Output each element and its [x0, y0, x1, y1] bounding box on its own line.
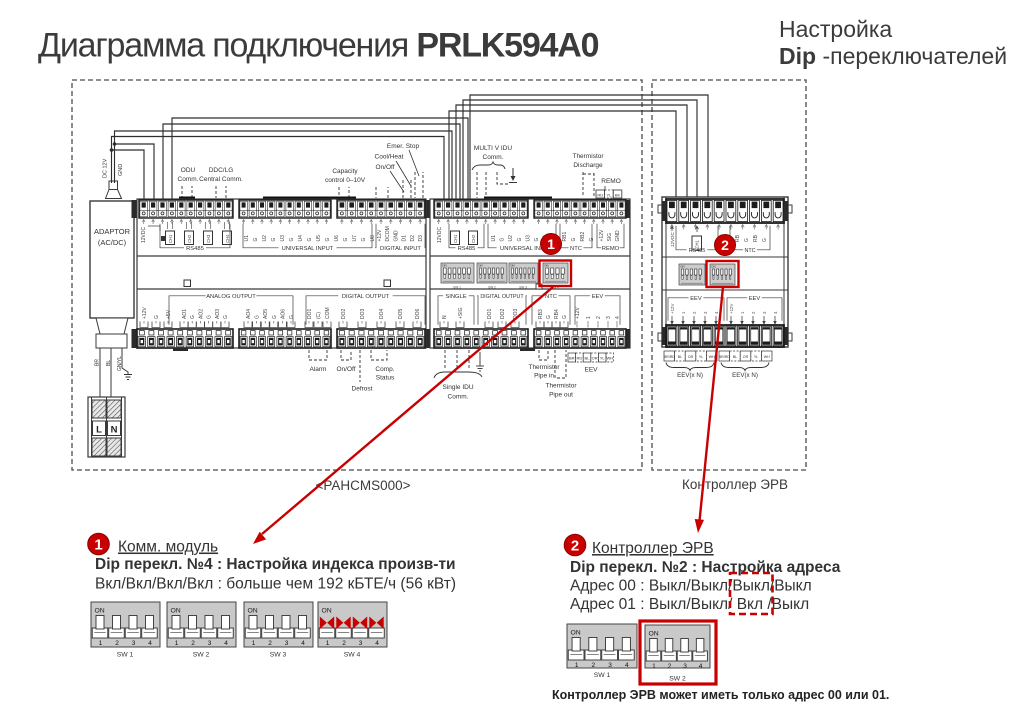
svg-text:G: G [223, 315, 229, 319]
svg-text:UNIVERSAL INPUT: UNIVERSAL INPUT [282, 246, 334, 252]
svg-text:YL: YL [600, 356, 606, 361]
svg-text:Thermistor: Thermistor [545, 383, 577, 390]
svg-text:Status: Status [376, 375, 395, 382]
svg-text:AO5: AO5 [263, 309, 269, 319]
svg-text:G: G [517, 238, 523, 242]
svg-text:RS485: RS485 [186, 246, 204, 252]
svg-text:G: G [546, 315, 552, 319]
svg-text:Dip перекл. №4 : Настройка инд: Dip перекл. №4 : Настройка индекса произ… [95, 556, 456, 573]
svg-text:RD: RD [597, 192, 603, 197]
svg-text:Вкл/Вкл/Вкл/Вкл : больше чем 1: Вкл/Вкл/Вкл/Вкл : больше чем 192 кБТЕ/ч … [95, 576, 456, 593]
svg-text:BR: BR [569, 356, 575, 361]
svg-text:ON: ON [649, 631, 659, 638]
svg-text:BK: BK [615, 192, 621, 197]
svg-text:U5: U5 [316, 235, 322, 242]
svg-text:SW 2: SW 2 [488, 286, 496, 290]
svg-text:4: 4 [301, 640, 305, 647]
svg-text:DC 12V: DC 12V [103, 158, 109, 178]
svg-text:4: 4 [375, 640, 379, 647]
svg-text:Комм. модуль: Комм. модуль [118, 539, 218, 556]
svg-text:SIG: SIG [607, 233, 613, 242]
svg-text:Dip -переключателей: Dip -переключателей [779, 43, 1007, 69]
svg-text:+12V: +12V [670, 304, 675, 314]
svg-text:Emer. Stop: Emer. Stop [387, 143, 420, 150]
svg-text:2: 2 [668, 663, 672, 670]
svg-text:EEV: EEV [749, 296, 761, 302]
svg-text:BR/RD: BR/RD [664, 355, 676, 359]
svg-text:N: N [111, 425, 118, 436]
svg-text:G: G [289, 315, 295, 319]
svg-text:GND: GND [393, 230, 399, 242]
svg-text:DDC/LG: DDC/LG [209, 167, 234, 174]
svg-text:AO6: AO6 [280, 309, 286, 319]
svg-text:Dip перекл. №2 : Настройка адр: Dip перекл. №2 : Настройка адреса [570, 559, 841, 576]
svg-text:Central Comm.: Central Comm. [199, 176, 243, 183]
svg-text:D1: D1 [402, 235, 408, 242]
svg-text:DO6: DO6 [415, 309, 421, 320]
svg-text:L: L [96, 425, 102, 436]
svg-text:ON: ON [95, 608, 105, 615]
svg-text:+12V: +12V [377, 229, 383, 241]
svg-text:GND: GND [118, 164, 124, 176]
svg-text:Single IDU: Single IDU [442, 384, 473, 391]
svg-text:D2: D2 [410, 235, 416, 242]
svg-text:G: G [289, 238, 295, 242]
svg-text:BL: BL [585, 356, 591, 361]
svg-text:G: G [154, 315, 160, 319]
svg-text:DO3: DO3 [360, 309, 366, 320]
svg-text:AO1: AO1 [182, 309, 188, 319]
svg-text:G: G [562, 315, 568, 319]
svg-text:U6: U6 [334, 235, 340, 242]
svg-text:CH2: CH2 [471, 234, 476, 243]
svg-text:4: 4 [148, 640, 152, 647]
svg-text:G: G [271, 238, 277, 242]
svg-text:3: 3 [359, 640, 363, 647]
svg-text:SW 1: SW 1 [117, 652, 134, 659]
svg-text:1: 1 [547, 236, 555, 252]
svg-text:RB: RB [753, 234, 759, 242]
svg-text:U3: U3 [525, 235, 531, 242]
svg-text:Thermistor: Thermistor [572, 153, 604, 160]
svg-text:G: G [255, 315, 261, 319]
svg-text:ON: ON [571, 630, 581, 637]
svg-text:Comm.: Comm. [483, 154, 504, 161]
svg-text:1: 1 [652, 663, 656, 670]
svg-text:G: G [571, 238, 577, 242]
svg-text:EEV: EEV [584, 367, 598, 374]
svg-text:U8: U8 [370, 235, 376, 242]
svg-text:DO5: DO5 [398, 309, 404, 320]
svg-text:DO2: DO2 [341, 309, 347, 320]
svg-text:YL: YL [606, 192, 612, 197]
svg-text:ANALOG OUTPUT: ANALOG OUTPUT [206, 294, 256, 300]
svg-text:AO3: AO3 [215, 309, 221, 319]
svg-text:Pipe out: Pipe out [549, 392, 573, 399]
svg-text:DIGITAL OUTPUT: DIGITAL OUTPUT [480, 294, 524, 300]
svg-text:G: G [272, 315, 278, 319]
svg-text:1: 1 [586, 316, 592, 319]
svg-text:AO4: AO4 [246, 309, 252, 319]
svg-text:CH3: CH3 [206, 234, 211, 243]
svg-text:EEV(x N): EEV(x N) [677, 372, 703, 379]
svg-text:+5V: +5V [166, 309, 172, 319]
svg-text:WH: WH [606, 356, 613, 361]
svg-text:CH1: CH1 [695, 239, 700, 248]
svg-text:DO1: DO1 [487, 309, 493, 320]
svg-text:ON: ON [711, 265, 716, 269]
svg-text:G: G [190, 315, 196, 319]
svg-text:Контроллер ЭРВ: Контроллер ЭРВ [682, 477, 788, 492]
svg-text:G: G [325, 238, 331, 242]
svg-text:Comp.: Comp. [375, 366, 394, 373]
svg-text:G: G [361, 238, 367, 242]
svg-text:SW 4: SW 4 [344, 652, 361, 659]
svg-text:D3: D3 [418, 235, 424, 242]
svg-text:3: 3 [208, 640, 212, 647]
svg-text:RS485: RS485 [689, 248, 705, 254]
svg-text:SW 1: SW 1 [594, 672, 611, 679]
svg-text:ODU: ODU [181, 167, 196, 174]
svg-text:2: 2 [191, 640, 195, 647]
svg-text:RS485: RS485 [458, 246, 476, 252]
svg-text:1: 1 [94, 537, 102, 554]
svg-text:REMO: REMO [601, 178, 621, 185]
svg-text:MULTI V IDU: MULTI V IDU [474, 145, 512, 152]
svg-text:DCOM: DCOM [385, 226, 391, 241]
svg-text:2: 2 [342, 640, 346, 647]
svg-text:DO4: DO4 [379, 309, 385, 320]
svg-text:control 0–10V: control 0–10V [325, 177, 366, 184]
svg-text:COM: COM [325, 307, 331, 319]
svg-text:NTC: NTC [545, 294, 557, 300]
svg-text:Discharge: Discharge [573, 162, 603, 169]
svg-text:GND: GND [615, 230, 621, 242]
svg-text:SW 1: SW 1 [453, 286, 461, 290]
svg-text:12VDC: 12VDC [670, 232, 675, 247]
svg-text:Контроллер ЭРВ: Контроллер ЭРВ [592, 540, 714, 557]
svg-text:(C): (C) [316, 312, 322, 319]
svg-text:G: G [744, 238, 750, 242]
svg-text:G: G [343, 238, 349, 242]
svg-text:G: G [762, 238, 768, 242]
svg-text:DO1: DO1 [307, 309, 313, 320]
svg-text:DIGITAL INPUT: DIGITAL INPUT [380, 246, 421, 252]
svg-text:+12V: +12V [599, 229, 605, 241]
svg-text:NTC: NTC [744, 248, 755, 254]
svg-text:4: 4 [699, 663, 703, 670]
svg-text:BR: BR [95, 359, 101, 366]
svg-text:RB: RB [735, 234, 741, 242]
svg-text:BL: BL [678, 355, 682, 359]
svg-text:Defrost: Defrost [352, 386, 373, 393]
svg-text:2: 2 [721, 237, 729, 253]
svg-text:(AC/DC): (AC/DC) [98, 238, 127, 247]
svg-text:RD: RD [577, 356, 583, 361]
svg-text:+SIG: +SIG [458, 307, 464, 319]
svg-text:ON: ON [171, 608, 181, 615]
svg-text:2: 2 [592, 662, 596, 669]
svg-text:1: 1 [326, 640, 330, 647]
svg-text:OR: OR [688, 355, 694, 359]
svg-text:CH2: CH2 [187, 234, 192, 243]
svg-text:+12V: +12V [142, 307, 148, 319]
svg-text:EEV: EEV [592, 294, 604, 300]
svg-text:On/Off: On/Off [336, 366, 355, 373]
svg-text:ON: ON [544, 264, 549, 268]
svg-text:+12V: +12V [729, 304, 734, 314]
svg-text:Thermistor: Thermistor [528, 364, 560, 371]
svg-text:+12V: +12V [575, 307, 581, 319]
svg-text:1: 1 [575, 662, 579, 669]
svg-text:3: 3 [608, 662, 612, 669]
svg-text:Диаграмма подключения PRLK594A: Диаграмма подключения PRLK594A0 [38, 27, 599, 65]
svg-text:Pipe in: Pipe in [534, 373, 554, 380]
svg-text:GN/YL: GN/YL [117, 356, 123, 371]
svg-text:12VDC: 12VDC [141, 226, 147, 243]
svg-text:WH: WH [709, 355, 715, 359]
svg-text:On/Off: On/Off [375, 164, 394, 171]
svg-text:Cool/Heat: Cool/Heat [375, 154, 404, 161]
svg-text:REMO: REMO [602, 246, 620, 252]
svg-text:ON: ON [478, 264, 483, 268]
svg-text:Адрес 00 : Выкл/Выкл/Выкл/Выкл: Адрес 00 : Выкл/Выкл/Выкл/Выкл [570, 578, 812, 595]
svg-text:CH4: CH4 [225, 234, 230, 243]
svg-text:ADAPTOR: ADAPTOR [94, 227, 131, 236]
svg-text:YL: YL [754, 355, 758, 359]
svg-text:AO2: AO2 [198, 309, 204, 319]
svg-text:U1: U1 [491, 235, 497, 242]
svg-text:G: G [500, 238, 506, 242]
svg-text:U3: U3 [280, 235, 286, 242]
svg-text:Comm.: Comm. [448, 394, 469, 401]
svg-text:4: 4 [224, 640, 228, 647]
svg-text:DIGITAL OUTPUT: DIGITAL OUTPUT [342, 294, 390, 300]
svg-text:3: 3 [606, 316, 612, 319]
svg-text:2: 2 [115, 640, 119, 647]
svg-text:2: 2 [571, 538, 579, 555]
svg-text:U4: U4 [298, 235, 304, 242]
svg-text:3: 3 [132, 640, 136, 647]
svg-text:SW 3: SW 3 [519, 286, 527, 290]
svg-text:G: G [307, 238, 313, 242]
svg-text:U2: U2 [508, 235, 514, 242]
svg-text:NTC: NTC [570, 246, 582, 252]
svg-text:1: 1 [175, 640, 179, 647]
svg-text:SINGLE: SINGLE [445, 294, 466, 300]
svg-text:U2: U2 [262, 235, 268, 242]
svg-text:1: 1 [252, 640, 256, 647]
svg-text:4: 4 [625, 662, 629, 669]
svg-text:RB2: RB2 [580, 232, 586, 242]
svg-text:ON: ON [442, 264, 447, 268]
svg-text:2: 2 [596, 316, 602, 319]
svg-text:WH: WH [764, 355, 770, 359]
svg-text:ON: ON [248, 608, 258, 615]
svg-text:Настройка: Настройка [779, 16, 892, 42]
svg-text:CH1: CH1 [168, 234, 173, 243]
svg-text:EEV(x N): EEV(x N) [732, 372, 758, 379]
svg-text:OR: OR [743, 355, 749, 359]
svg-text:Alarm: Alarm [310, 366, 327, 373]
svg-text:OR: OR [592, 356, 598, 361]
svg-text:<PAHCMS000>: <PAHCMS000> [315, 478, 410, 493]
svg-text:ON: ON [510, 264, 515, 268]
svg-text:U7: U7 [352, 235, 358, 242]
svg-text:2: 2 [268, 640, 272, 647]
svg-text:3: 3 [285, 640, 289, 647]
svg-text:3: 3 [683, 663, 687, 670]
svg-text:UNIVERSAL INP: UNIVERSAL INP [500, 246, 544, 252]
svg-text:Capacity: Capacity [332, 168, 358, 175]
svg-text:N: N [442, 315, 448, 319]
svg-text:1: 1 [99, 640, 103, 647]
svg-text:G: G [207, 315, 213, 319]
svg-text:U1: U1 [244, 235, 250, 242]
svg-text:DO2: DO2 [500, 309, 506, 320]
svg-text:RB1: RB1 [562, 232, 568, 242]
svg-text:G: G [253, 238, 259, 242]
svg-text:EEV: EEV [690, 296, 702, 302]
svg-text:SW 3: SW 3 [270, 652, 287, 659]
svg-text:SW 2: SW 2 [669, 676, 686, 683]
svg-text:G: G [534, 238, 540, 242]
svg-text:ON: ON [680, 265, 685, 269]
svg-text:12VDC: 12VDC [437, 226, 443, 243]
svg-text:CH1: CH1 [453, 234, 458, 243]
svg-text:BL: BL [733, 355, 737, 359]
svg-text:RB4: RB4 [554, 309, 560, 319]
svg-text:YL: YL [699, 355, 703, 359]
svg-text:Контроллер ЭРВ может иметь тол: Контроллер ЭРВ может иметь только адрес … [552, 688, 889, 702]
svg-text:SW 2: SW 2 [193, 652, 210, 659]
svg-text:BL: BL [106, 360, 112, 366]
svg-text:BR/RD: BR/RD [719, 355, 731, 359]
svg-text:Comm.: Comm. [178, 176, 199, 183]
svg-text:ON: ON [322, 608, 332, 615]
svg-text:4: 4 [615, 316, 621, 319]
svg-text:RB3: RB3 [538, 309, 544, 319]
